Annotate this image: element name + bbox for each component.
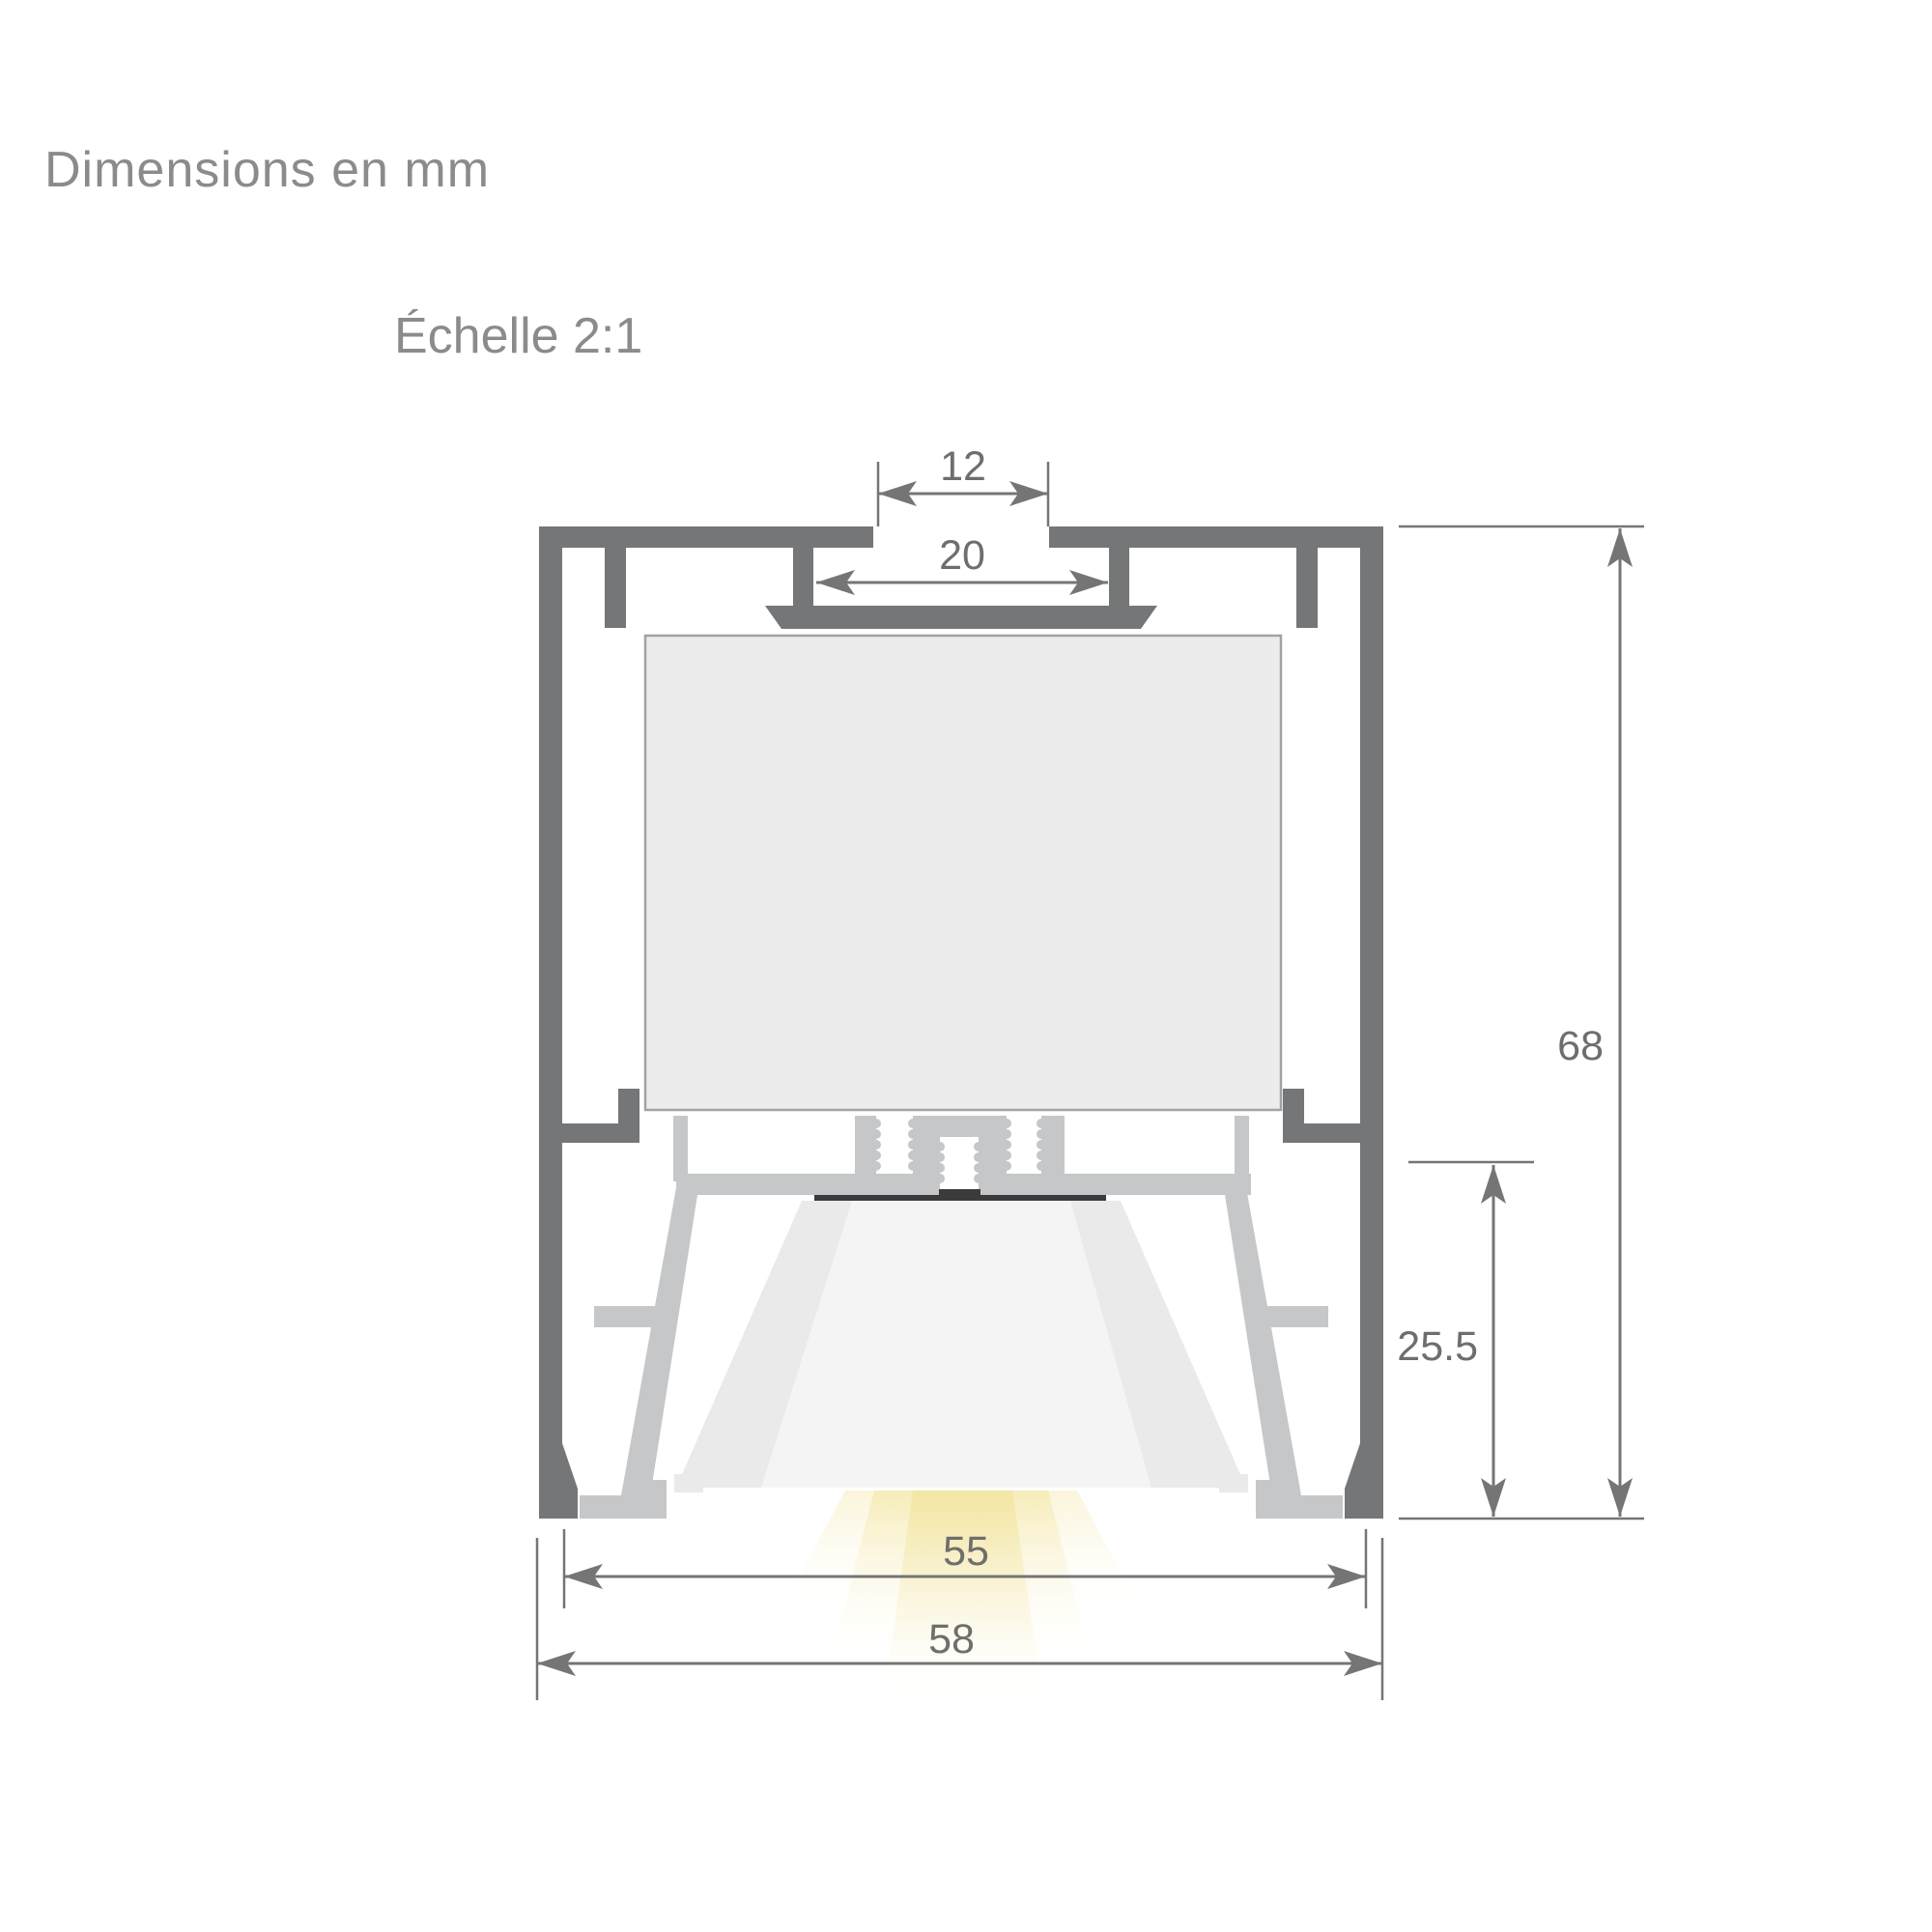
reflector-foot-left bbox=[580, 1495, 667, 1519]
reflector-side-left bbox=[621, 1177, 697, 1503]
top-wall-right bbox=[1049, 526, 1383, 548]
hanging-tab-right bbox=[1296, 548, 1318, 628]
tray-upright-left bbox=[673, 1116, 688, 1181]
reflector-foot-right-step bbox=[1256, 1480, 1296, 1495]
threaded-post-left bbox=[855, 1116, 881, 1176]
dim-label-68: 68 bbox=[1557, 1023, 1604, 1069]
mid-bracket-right-stub bbox=[1283, 1089, 1304, 1143]
diffuser-lens bbox=[674, 1201, 1248, 1492]
slot-leg-right bbox=[1109, 548, 1129, 609]
reflector-foot-left-step bbox=[626, 1480, 667, 1495]
slot-flange bbox=[765, 606, 1157, 629]
screw-slot bbox=[940, 1137, 979, 1193]
bottom-foot-left bbox=[562, 1443, 578, 1519]
screw-boss bbox=[908, 1116, 1011, 1195]
top-wall-left bbox=[539, 526, 873, 548]
bottom-foot-right bbox=[1345, 1443, 1360, 1519]
dim-label-58: 58 bbox=[928, 1616, 975, 1662]
dim-label-55: 55 bbox=[943, 1528, 989, 1575]
threaded-post-right bbox=[1037, 1116, 1065, 1176]
dim-label-12: 12 bbox=[940, 443, 986, 490]
slot-leg-left bbox=[793, 548, 813, 609]
reflector-ledge-right bbox=[1262, 1306, 1328, 1327]
driver-compartment bbox=[645, 636, 1281, 1110]
dimension-top-slot-opening: 12 bbox=[878, 443, 1048, 526]
dim-label-20: 20 bbox=[939, 532, 985, 579]
page: { "page": { "title": "Dimensions en mm",… bbox=[0, 0, 1932, 1932]
hanging-tab-left bbox=[605, 548, 626, 628]
diffuser-foot-right bbox=[1219, 1474, 1248, 1492]
diffuser-foot-left bbox=[674, 1474, 703, 1492]
light-beam bbox=[782, 1491, 1140, 1700]
reflector-foot-right bbox=[1256, 1495, 1343, 1519]
reflector-ledge-left bbox=[594, 1306, 661, 1327]
profile-cross-section-drawing: 12 20 68 25.5 55 58 bbox=[0, 0, 1932, 1932]
side-wall-left bbox=[539, 526, 562, 1519]
mid-bracket-left-stub bbox=[618, 1089, 639, 1143]
dim-label-25-5: 25.5 bbox=[1397, 1323, 1478, 1370]
dimension-light-chamber-height: 25.5 bbox=[1397, 1162, 1534, 1517]
reflector-side-right bbox=[1225, 1177, 1301, 1503]
tray-upright-right bbox=[1235, 1116, 1249, 1181]
side-wall-right bbox=[1360, 526, 1383, 1519]
